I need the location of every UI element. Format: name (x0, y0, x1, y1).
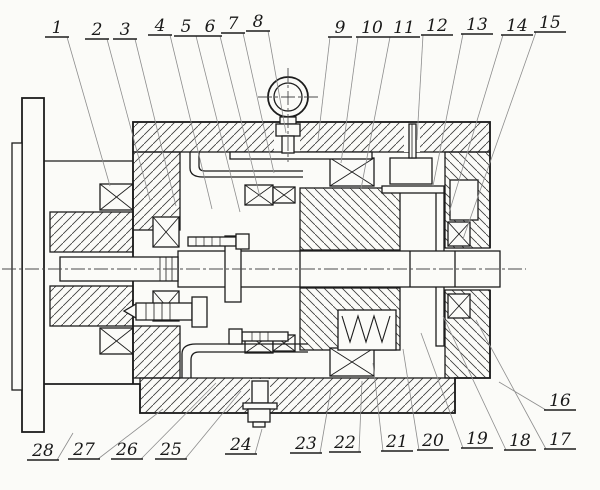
part-label-6: 6 (205, 17, 216, 37)
housing-bottom-wall (140, 378, 455, 413)
part-label-17: 17 (549, 430, 571, 450)
part-label-13: 13 (466, 15, 488, 35)
housing-left-wall-lower (133, 326, 180, 378)
part-label-10: 10 (361, 18, 383, 38)
part-label-25: 25 (159, 440, 182, 460)
part-label-5: 5 (181, 17, 192, 37)
seal-gland-lower (50, 286, 133, 326)
part-label-2: 2 (91, 20, 103, 40)
part-label-27: 27 (72, 440, 95, 460)
part-label-9: 9 (335, 18, 346, 38)
leader-line-2 (107, 39, 150, 200)
part-label-16: 16 (549, 391, 571, 411)
leader-line-6 (220, 36, 260, 197)
shaft-bearing-upper (153, 217, 179, 247)
part-label-21: 21 (385, 432, 408, 452)
seal-gland-upper (50, 212, 133, 252)
leader-line-24 (255, 429, 262, 454)
part-label-23: 23 (294, 434, 317, 454)
part-label-11: 11 (393, 18, 415, 38)
part-label-20: 20 (421, 431, 444, 451)
leader-line-1 (67, 37, 110, 186)
barrel-bearing-upper (330, 158, 374, 186)
adjusting-pin (409, 124, 416, 158)
return-spring (338, 310, 396, 350)
housing-top-wall (133, 122, 490, 152)
part-label-14: 14 (506, 16, 528, 36)
leader-line-28 (57, 433, 73, 460)
adjusting-stud-upper (188, 234, 249, 249)
part-label-12: 12 (426, 16, 448, 36)
part-label-15: 15 (539, 13, 561, 33)
barrel-bearing-lower (330, 348, 374, 376)
pump-assembly (12, 77, 500, 432)
drawing-sheet: 1234567891011121314151617181920212223242… (0, 0, 600, 490)
leader-line-11 (361, 37, 390, 189)
part-label-18: 18 (509, 431, 531, 451)
part-label-22: 22 (333, 433, 356, 453)
mounting-flange (12, 98, 44, 432)
part-label-28: 28 (31, 441, 54, 461)
part-label-24: 24 (229, 435, 252, 455)
cross-section-technical-drawing: 1234567891011121314151617181920212223242… (0, 0, 600, 490)
part-label-1: 1 (52, 18, 63, 38)
part-label-7: 7 (228, 14, 239, 34)
part-label-8: 8 (253, 12, 264, 32)
valve-plate (230, 152, 372, 159)
part-label-3: 3 (120, 20, 131, 40)
part-label-4: 4 (154, 16, 166, 36)
part-label-19: 19 (466, 429, 488, 449)
